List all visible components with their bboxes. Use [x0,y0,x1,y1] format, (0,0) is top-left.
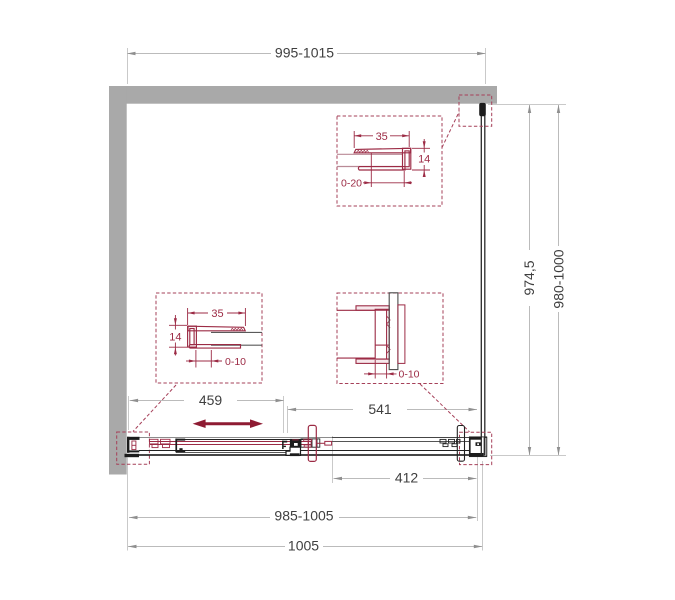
svg-text:0-10: 0-10 [398,368,419,380]
svg-text:980-1000: 980-1000 [551,249,567,308]
svg-text:35: 35 [211,308,223,320]
svg-text:995-1015: 995-1015 [275,45,334,61]
svg-text:412: 412 [395,470,419,486]
svg-text:459: 459 [199,392,223,408]
svg-text:0-20: 0-20 [341,177,362,189]
svg-text:14: 14 [169,331,181,343]
svg-text:541: 541 [368,401,392,417]
svg-text:0-10: 0-10 [225,356,246,368]
svg-text:985-1005: 985-1005 [274,508,333,524]
svg-text:35: 35 [376,131,388,143]
svg-text:1005: 1005 [288,538,319,554]
svg-text:14: 14 [418,154,430,166]
svg-text:974,5: 974,5 [521,260,537,295]
